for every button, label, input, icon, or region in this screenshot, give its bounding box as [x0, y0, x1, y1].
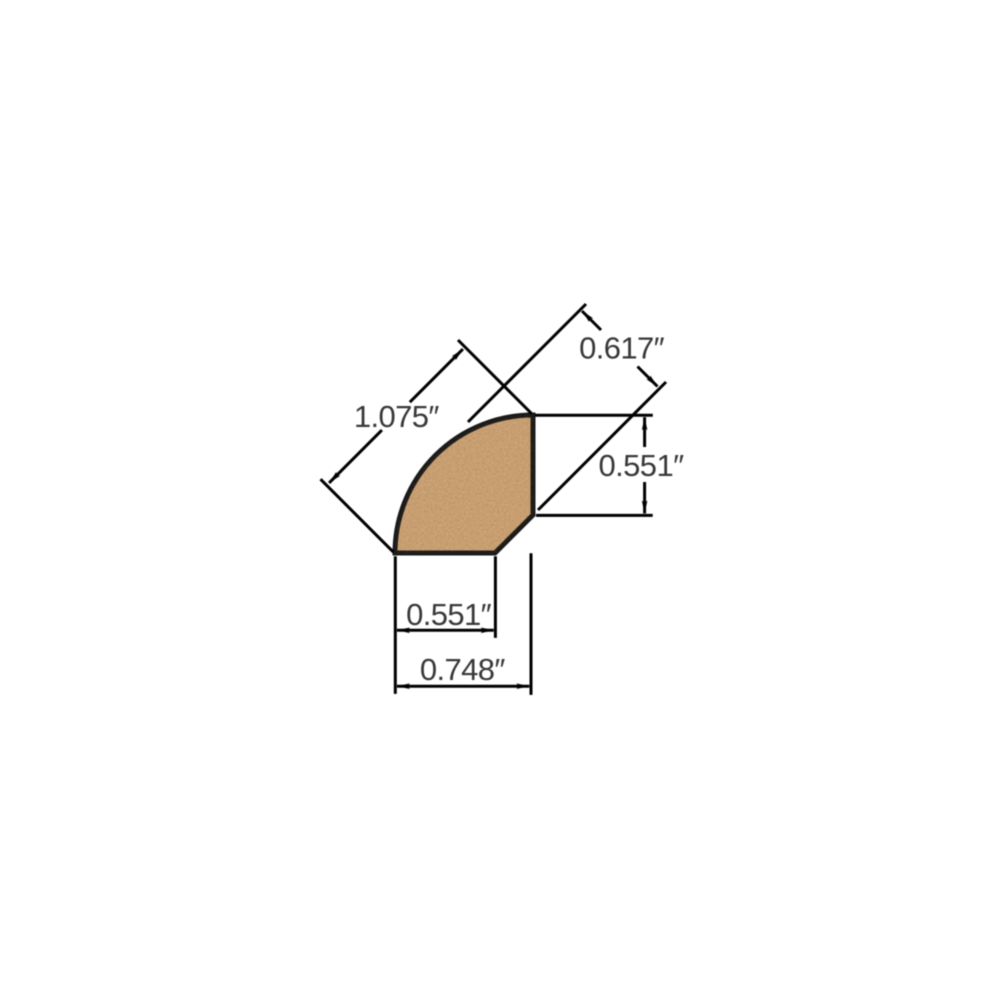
svg-text:1.075″: 1.075″ — [354, 399, 440, 434]
svg-text:0.551″: 0.551″ — [599, 448, 685, 483]
svg-text:0.551″: 0.551″ — [406, 597, 492, 632]
svg-text:0.748″: 0.748″ — [420, 652, 506, 687]
svg-text:0.617″: 0.617″ — [579, 330, 665, 365]
